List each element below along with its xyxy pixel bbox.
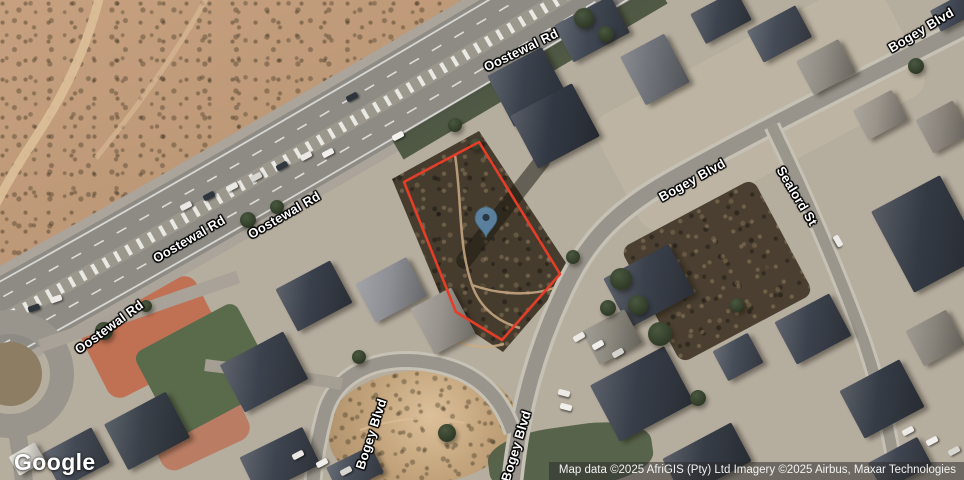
road-label: Bogey Blvd [353,397,388,471]
road-labels-layer: Oostewal RdOostewal RdOostewal RdOostewa… [0,0,964,480]
road-label: Bogey Blvd [657,156,728,203]
map-attribution: Map data ©2025 AfriGIS (Pty) Ltd Imagery… [549,462,964,480]
map-canvas[interactable]: Oostewal RdOostewal RdOostewal RdOostewa… [0,0,964,480]
road-label: Sealord St [774,164,819,228]
road-label: Oostewal Rd [151,213,228,265]
road-label: Oostewal Rd [246,189,323,241]
road-label: Oostewal Rd [482,26,560,73]
google-logo[interactable]: Google [14,451,96,474]
road-label: Bogey Blvd [499,409,533,480]
road-label: Oostewal Rd [72,298,145,356]
road-label: Bogey Blvd [886,5,956,54]
